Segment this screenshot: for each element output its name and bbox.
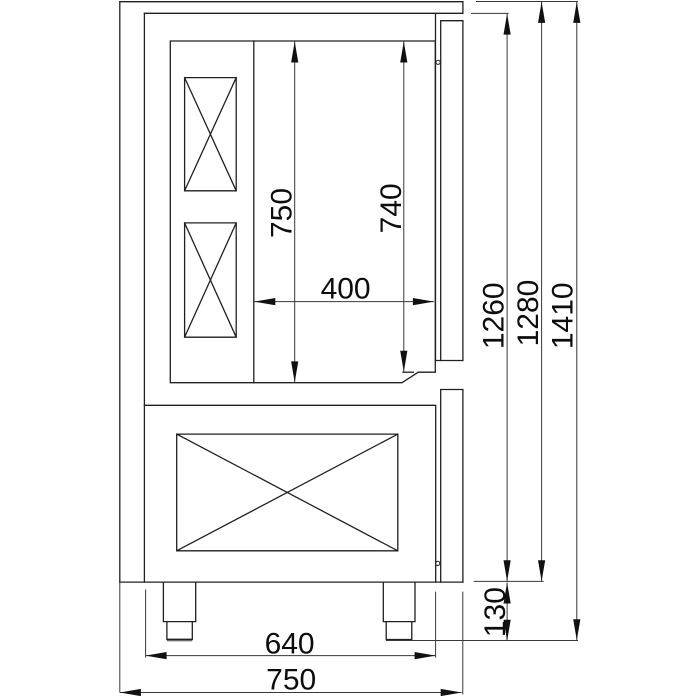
svg-text:1280: 1280 [512,280,545,347]
svg-text:1410: 1410 [547,282,580,349]
svg-text:400: 400 [321,272,371,305]
svg-text:130: 130 [479,587,512,637]
svg-text:740: 740 [375,183,408,233]
svg-text:1260: 1260 [478,282,511,349]
svg-text:640: 640 [265,627,315,660]
svg-text:750: 750 [266,188,299,238]
svg-text:750: 750 [266,663,316,696]
